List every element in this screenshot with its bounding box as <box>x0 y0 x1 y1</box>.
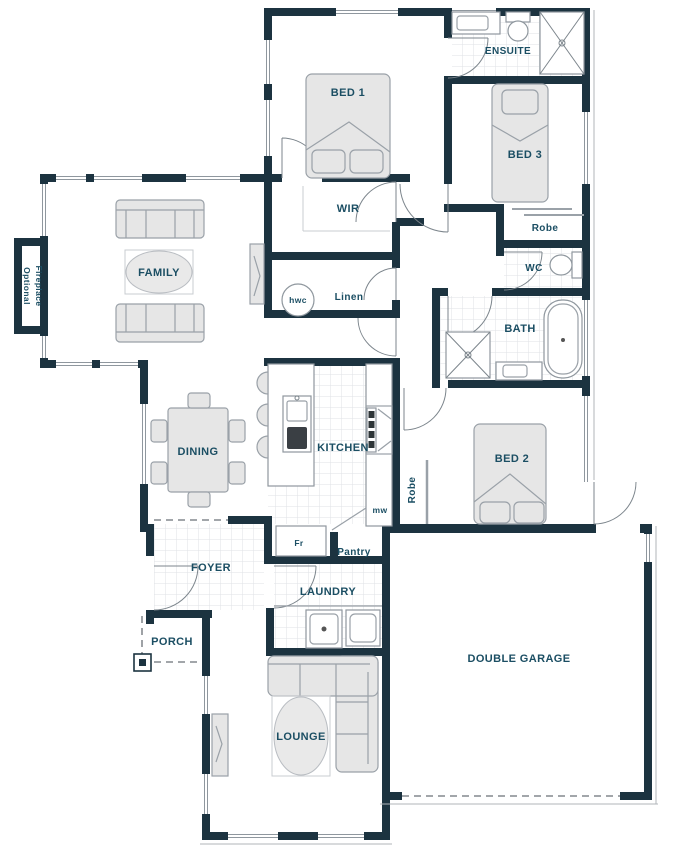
window <box>264 40 272 84</box>
room-label-wir: WIR <box>337 203 360 215</box>
kitchen-sink <box>283 396 311 452</box>
window <box>94 174 142 182</box>
window <box>40 336 48 358</box>
window <box>56 360 92 368</box>
window <box>228 832 278 840</box>
ensuite-vanity <box>452 12 500 34</box>
lounge-tv-unit <box>212 714 228 776</box>
label-optional-fireplace-line2: Fireplace <box>34 266 44 307</box>
room-label-ensuite: ENSUITE <box>485 46 531 57</box>
label-microwave: mw <box>373 505 388 515</box>
room-label-bath: BATH <box>504 323 535 335</box>
room-label-lounge: LOUNGE <box>276 731 325 743</box>
bed3-robe-rails <box>512 209 584 215</box>
room-label-bed2: BED 2 <box>495 453 529 465</box>
kitchen-island <box>257 364 314 486</box>
floor-plan-canvas: BED 1 ENSUITE BED 3 WIR Robe WC Optional… <box>0 0 690 855</box>
room-label-bed1: BED 1 <box>331 87 365 99</box>
window <box>202 774 210 814</box>
window <box>202 676 210 714</box>
washing-machine <box>346 610 380 646</box>
room-label-pantry: Pantry <box>337 547 371 558</box>
room-label-robe-bed2: Robe <box>407 477 418 504</box>
room-label-bed3: BED 3 <box>508 149 542 161</box>
room-label-kitchen: KITCHEN <box>317 442 369 454</box>
family-sofa-bottom <box>116 304 204 342</box>
room-label-garage: DOUBLE GARAGE <box>468 653 571 665</box>
ensuite-shower <box>540 12 584 74</box>
linen-door-arc <box>364 268 396 300</box>
room-label-dining: DINING <box>178 446 219 458</box>
window <box>186 174 240 182</box>
window <box>582 112 590 184</box>
label-hwc: hwc <box>289 295 307 305</box>
window <box>582 396 590 486</box>
laundry-tub <box>306 610 342 648</box>
window <box>56 174 86 182</box>
window <box>40 184 48 236</box>
wir-door-arc <box>356 182 396 222</box>
window <box>140 404 148 484</box>
window <box>644 534 652 562</box>
label-optional-fireplace-line1: Optional <box>22 267 32 305</box>
family-sofa-top <box>116 200 204 238</box>
room-label-robe-bed3: Robe <box>532 223 559 234</box>
floor-plan-drawing: BED 1 ENSUITE BED 3 WIR Robe WC Optional… <box>0 0 690 855</box>
kitchen-bench-right <box>366 364 392 526</box>
room-label-family: FAMILY <box>138 267 180 279</box>
window <box>336 8 398 16</box>
bath-vanity <box>496 362 542 380</box>
room-label-linen: Linen <box>335 292 364 303</box>
window <box>264 100 272 156</box>
window <box>100 360 138 368</box>
ensuite-toilet <box>506 12 530 41</box>
window <box>582 300 590 376</box>
room-label-foyer: FOYER <box>191 562 231 574</box>
porch-post <box>134 654 151 671</box>
bathtub <box>544 300 582 378</box>
hall-door-arc <box>358 318 396 356</box>
label-fridge: Fr <box>294 538 304 548</box>
bath-shower <box>446 332 490 378</box>
side-entry-door-arc <box>594 482 636 524</box>
bed3-bed <box>492 84 548 202</box>
bed2-bed <box>474 424 546 524</box>
room-label-porch: PORCH <box>151 636 193 648</box>
family-tv-unit <box>250 244 264 304</box>
room-label-wc: WC <box>525 263 542 274</box>
bed2-door-arc <box>404 388 446 430</box>
window <box>318 832 364 840</box>
room-label-laundry: LAUNDRY <box>300 586 356 598</box>
